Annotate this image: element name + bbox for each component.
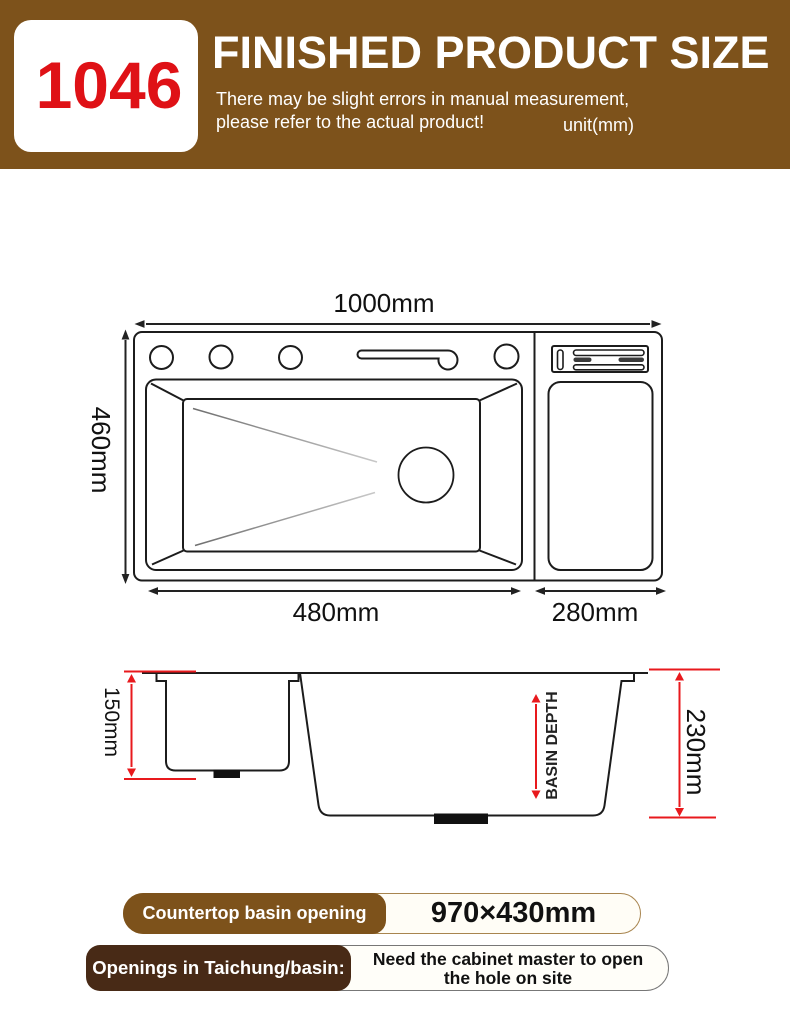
svg-text:BASIN DEPTH: BASIN DEPTH xyxy=(544,691,561,799)
svg-text:1000mm: 1000mm xyxy=(333,288,434,318)
svg-text:480mm: 480mm xyxy=(293,597,380,627)
svg-text:230mm: 230mm xyxy=(681,709,711,796)
svg-text:460mm: 460mm xyxy=(86,407,116,494)
svg-text:280mm: 280mm xyxy=(552,597,639,627)
svg-text:150mm: 150mm xyxy=(100,687,123,757)
